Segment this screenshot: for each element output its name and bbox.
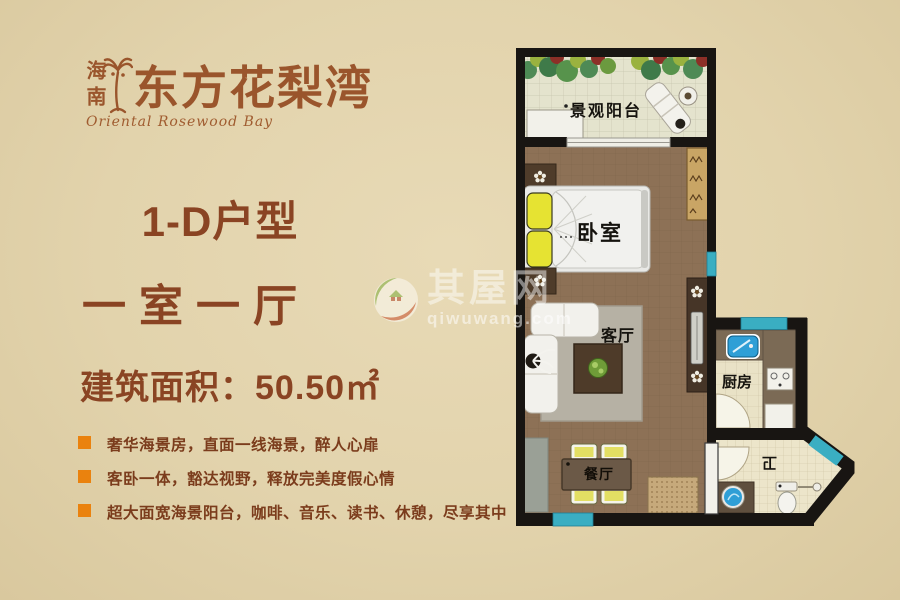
window (707, 252, 716, 276)
feature-text: 奢华海景房，直面一线海景，醉人心扉 (107, 433, 379, 455)
brand-tagline: Oriental Rosewood Bay (86, 114, 273, 130)
window (553, 513, 593, 526)
bullet-square-icon (78, 470, 91, 483)
brand-name: 东方花梨湾 (133, 52, 373, 118)
room-label-kitchen: 厨房 (722, 371, 752, 392)
wardrobe (687, 148, 708, 220)
layout-title: 一室一厅 (82, 270, 310, 334)
page-background: 海南 东方花梨湾 Oriental Rosewood Bay 1-D户型 一室一… (0, 0, 900, 600)
room-label-balcony: 景观阳台 (570, 97, 642, 121)
room-label-bedroom: 卧室 (577, 217, 623, 247)
palm-tree-icon (103, 54, 133, 118)
room-label-bath: 卫 (762, 453, 777, 474)
feature-text: 客卧一体，豁达视野，释放完美度假心情 (107, 467, 395, 489)
floor-plan (500, 35, 870, 545)
room-label-dining: 餐厅 (584, 464, 614, 484)
bathroom-sink (724, 488, 742, 506)
hall-cabinet (524, 438, 548, 512)
doormat (648, 477, 698, 513)
window (741, 318, 787, 330)
feature-item: 奢华海景房，直面一线海景，醉人心扉 (78, 433, 507, 455)
bullet-square-icon (78, 504, 91, 517)
tv-cabinet (687, 278, 708, 392)
dining-chair (601, 444, 627, 460)
bathroom-vanity (714, 482, 754, 513)
toilet (776, 482, 797, 514)
feature-list: 奢华海景房，直面一线海景，醉人心扉 客卧一体，豁达视野，释放完美度假心情 超大面… (78, 433, 507, 535)
pillow (527, 193, 552, 229)
feature-text: 超大面宽海景阳台，咖啡、音乐、读书、休憩，尽享其中 (107, 501, 507, 523)
stove (767, 368, 793, 390)
coffee-table (574, 344, 622, 393)
table-plant (589, 359, 608, 378)
feature-item: 超大面宽海景阳台，咖啡、音乐、读书、休憩，尽享其中 (78, 501, 507, 523)
entry-door (705, 443, 718, 514)
dining-chair (571, 444, 597, 460)
side-table-center (685, 93, 692, 100)
kitchen-cabinet (765, 404, 793, 429)
watermark-logo-icon (370, 270, 422, 328)
balcony-window (567, 138, 670, 147)
unit-title: 1-D户型 (120, 188, 320, 249)
label-leader-dot (564, 104, 568, 108)
kitchen-sink (726, 334, 760, 359)
area-label: 建筑面积：50.50㎡ (80, 360, 380, 409)
pillow (527, 231, 552, 267)
bullet-square-icon (78, 436, 91, 449)
room-label-living: 客厅 (601, 322, 635, 346)
feature-item: 客卧一体，豁达视野，释放完美度假心情 (78, 467, 507, 489)
